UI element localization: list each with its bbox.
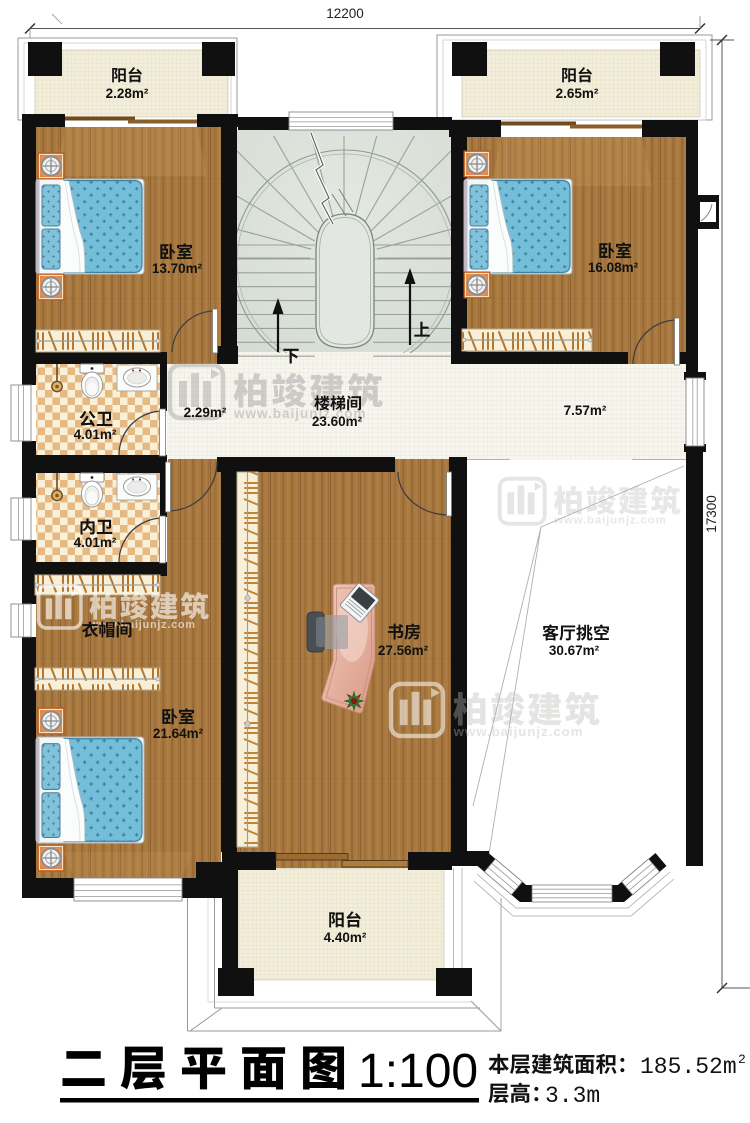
svg-text:www.baijunjz.com: www.baijunjz.com: [553, 515, 667, 527]
svg-text:7.57m²: 7.57m²: [564, 403, 607, 418]
svg-text:3.3m: 3.3m: [545, 1083, 600, 1109]
svg-text:www.baijunjz.com: www.baijunjz.com: [453, 724, 584, 739]
svg-text:23.60m²: 23.60m²: [312, 414, 363, 429]
svg-text:17300: 17300: [704, 495, 719, 533]
svg-text:185.52m: 185.52m: [640, 1054, 737, 1080]
svg-text:2.28m²: 2.28m²: [106, 86, 149, 101]
svg-text:4.01m²: 4.01m²: [74, 427, 117, 442]
svg-text:4.40m²: 4.40m²: [324, 930, 367, 945]
svg-text:2: 2: [738, 1052, 746, 1067]
svg-text:21.64m²: 21.64m²: [153, 726, 204, 741]
svg-text:1:100: 1:100: [358, 1045, 478, 1098]
svg-text:12200: 12200: [326, 6, 364, 21]
svg-text:4.01m²: 4.01m²: [74, 535, 117, 550]
svg-text:2.29m²: 2.29m²: [184, 405, 227, 420]
svg-text:16.08m²: 16.08m²: [588, 260, 639, 275]
svg-text:27.56m²: 27.56m²: [378, 643, 429, 658]
svg-text:13.70m²: 13.70m²: [152, 261, 203, 276]
svg-text:2.65m²: 2.65m²: [556, 86, 599, 101]
svg-text:30.67m²: 30.67m²: [549, 643, 600, 658]
